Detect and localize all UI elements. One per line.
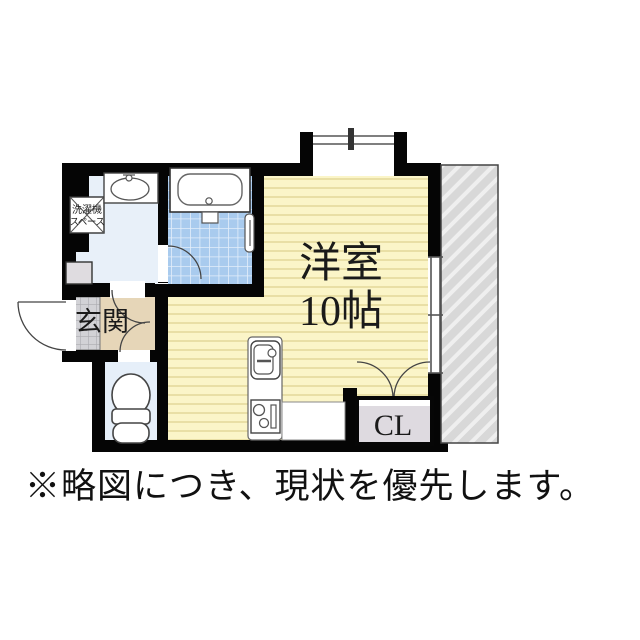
room-label-line1: 洋室 <box>299 240 383 287</box>
bathtub <box>170 168 250 212</box>
bath-wall-rack <box>245 214 254 252</box>
bay-window <box>313 128 394 176</box>
floorplan-page: 洋室 10帖 CL 玄関 洗濯機 スペース ※略図につき、現状を優先します。 <box>0 0 640 640</box>
bath-shower-box <box>202 212 218 223</box>
entrance-door-arc <box>18 302 66 350</box>
kitchen-counter <box>282 402 345 440</box>
laundry-label-line1: 洗濯機 <box>72 203 102 216</box>
shoe-cabinet <box>66 262 92 284</box>
closet-label: CL <box>374 409 412 442</box>
room-label-line2: 10帖 <box>299 289 383 335</box>
toilet <box>112 374 150 443</box>
laundry-label-line2: スペース <box>70 217 105 228</box>
washbasin <box>104 173 158 203</box>
entrance-label: 玄関 <box>75 307 129 337</box>
floorplan-drawing: 洋室 10帖 CL 玄関 洗濯機 スペース <box>0 0 640 530</box>
disclaimer-note: ※略図につき、現状を優先します。 <box>25 458 595 509</box>
adjacent-building-hatch <box>441 165 498 443</box>
kitchen-faucet <box>268 349 276 357</box>
